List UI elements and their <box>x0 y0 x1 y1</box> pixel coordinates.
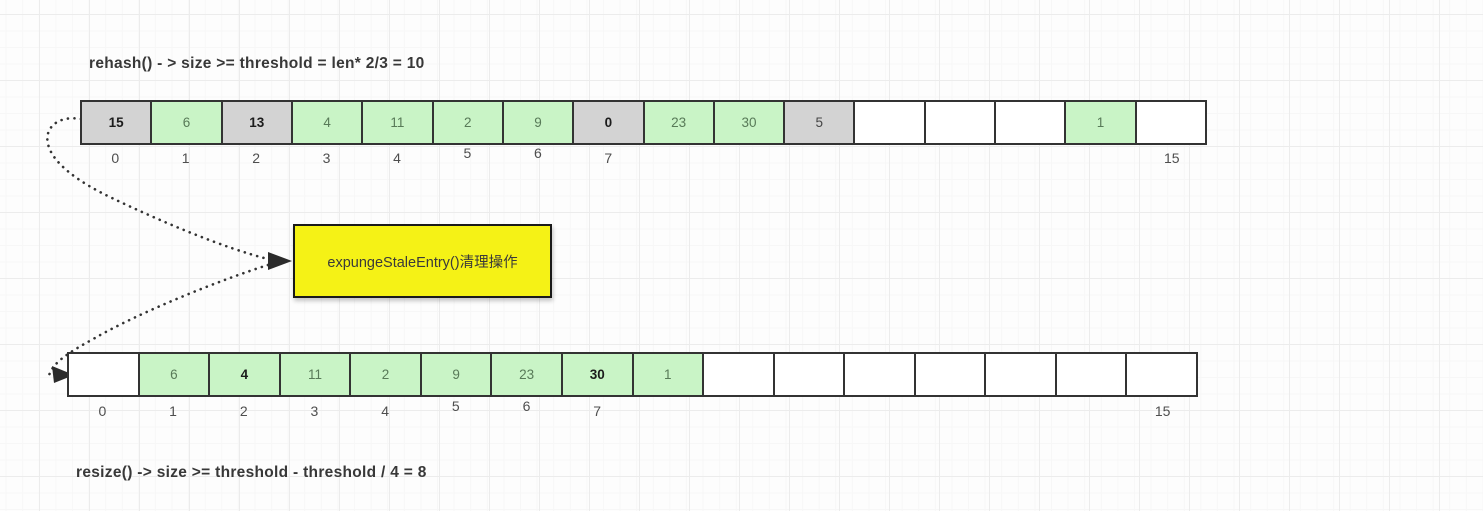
array-cell: 1 <box>1066 102 1136 143</box>
index-label: 2 <box>252 150 260 166</box>
array-cell <box>1057 354 1128 395</box>
array-cell: 9 <box>422 354 493 395</box>
array-cell <box>1137 102 1205 143</box>
note-box-label: expungeStaleEntry()清理操作 <box>327 251 517 272</box>
array-cell: 23 <box>645 102 715 143</box>
bottom-hash-array: 64112923301 <box>67 352 1198 397</box>
array-cell: 13 <box>223 102 293 143</box>
array-cell: 4 <box>293 102 363 143</box>
index-label: 7 <box>604 150 612 166</box>
array-cell <box>69 354 140 395</box>
array-cell <box>855 102 925 143</box>
array-cell <box>926 102 996 143</box>
array-cell: 30 <box>715 102 785 143</box>
array-cell: 0 <box>574 102 644 143</box>
index-label: 15 <box>1155 403 1171 419</box>
array-cell: 11 <box>363 102 433 143</box>
index-label: 15 <box>1164 150 1180 166</box>
top-hash-array: 15613411290233051 <box>80 100 1207 145</box>
array-cell <box>704 354 775 395</box>
array-cell: 23 <box>492 354 563 395</box>
array-cell: 2 <box>434 102 504 143</box>
array-cell <box>775 354 846 395</box>
note-box: expungeStaleEntry()清理操作 <box>293 224 552 298</box>
array-cell: 4 <box>210 354 281 395</box>
top-array-index-labels: 0123456715 <box>80 150 1207 170</box>
index-label: 0 <box>98 403 106 419</box>
resize-formula-text: resize() -> size >= threshold - threshol… <box>76 464 427 482</box>
index-label: 4 <box>393 150 401 166</box>
array-cell: 1 <box>634 354 705 395</box>
array-cell <box>1127 354 1196 395</box>
index-label: 4 <box>381 403 389 419</box>
index-label: 6 <box>523 398 531 414</box>
index-label: 5 <box>464 145 472 161</box>
array-cell <box>996 102 1066 143</box>
array-cell: 30 <box>563 354 634 395</box>
array-cell <box>845 354 916 395</box>
array-cell: 6 <box>140 354 211 395</box>
array-cell <box>916 354 987 395</box>
index-label: 0 <box>111 150 119 166</box>
rehash-formula-text: rehash() - > size >= threshold = len* 2/… <box>89 55 425 73</box>
index-label: 5 <box>452 398 460 414</box>
array-cell: 2 <box>351 354 422 395</box>
index-label: 6 <box>534 145 542 161</box>
array-cell: 11 <box>281 354 352 395</box>
index-label: 7 <box>593 403 601 419</box>
arrowhead-into-note-box-icon <box>268 252 292 270</box>
index-label: 3 <box>311 403 319 419</box>
diagram-canvas: rehash() - > size >= threshold = len* 2/… <box>0 0 1483 511</box>
connector-overlay <box>0 0 1483 511</box>
array-cell: 5 <box>785 102 855 143</box>
bottom-array-index-labels: 0123456715 <box>67 403 1198 423</box>
index-label: 3 <box>323 150 331 166</box>
array-cell: 15 <box>82 102 152 143</box>
array-cell <box>986 354 1057 395</box>
index-label: 2 <box>240 403 248 419</box>
index-label: 1 <box>169 403 177 419</box>
array-cell: 6 <box>152 102 222 143</box>
array-cell: 9 <box>504 102 574 143</box>
index-label: 1 <box>182 150 190 166</box>
